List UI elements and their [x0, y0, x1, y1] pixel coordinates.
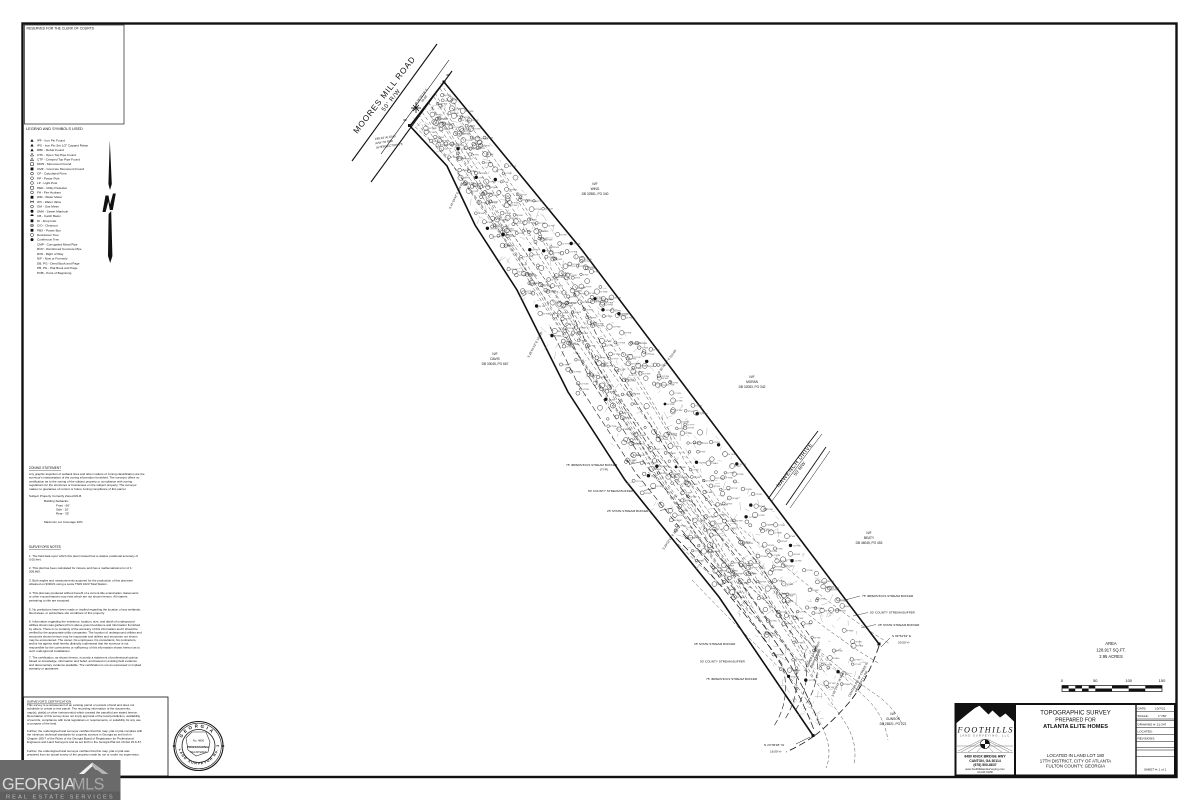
- svg-text:8"HW: 8"HW: [698, 560, 703, 562]
- svg-text:20"PINE: 20"PINE: [595, 325, 604, 327]
- svg-text:50: 50: [1093, 678, 1098, 683]
- svg-text:N/F: N/F: [890, 712, 895, 716]
- svg-text:12"PINE: 12"PINE: [600, 292, 609, 294]
- svg-text:16"PINE: 16"PINE: [715, 478, 724, 480]
- svg-text:8"PINE: 8"PINE: [559, 276, 566, 278]
- svg-text:8"HW: 8"HW: [594, 272, 599, 274]
- svg-text:30"HW: 30"HW: [589, 268, 596, 270]
- svg-text:8"PINE: 8"PINE: [606, 316, 613, 318]
- svg-text:12"HW: 12"HW: [468, 126, 475, 128]
- svg-text:8"PINE: 8"PINE: [541, 239, 548, 241]
- svg-text:24"HW: 24"HW: [654, 469, 661, 471]
- svg-text:6"HW: 6"HW: [482, 202, 487, 204]
- svg-text:CMP - Corrugated Metal Pipe: CMP - Corrugated Metal Pipe: [37, 242, 78, 246]
- svg-text:6"MAG: 6"MAG: [844, 683, 851, 686]
- svg-text:6"HW: 6"HW: [519, 233, 524, 235]
- svg-text:18"HW: 18"HW: [606, 345, 613, 347]
- svg-text:20"PINE: 20"PINE: [631, 363, 640, 365]
- svg-text:MORAN: MORAN: [746, 380, 759, 384]
- svg-text:CMF - Concrete Monument Found: CMF - Concrete Monument Found: [37, 167, 84, 171]
- svg-text:12"HW: 12"HW: [543, 313, 550, 315]
- svg-text:14"HW: 14"HW: [713, 551, 720, 553]
- svg-text:12"PINE: 12"PINE: [605, 305, 614, 307]
- svg-text:12"PINE: 12"PINE: [511, 218, 520, 220]
- svg-text:18"HW: 18"HW: [553, 247, 560, 249]
- svg-text:12"HW: 12"HW: [518, 272, 525, 274]
- svg-text:LOCATED IN LAND LOT 180: LOCATED IN LAND LOT 180: [1047, 753, 1105, 758]
- svg-text:6"MAG: 6"MAG: [711, 462, 718, 465]
- svg-text:8"HW: 8"HW: [787, 624, 792, 626]
- svg-text:10"GUM: 10"GUM: [462, 120, 470, 122]
- svg-text:208,660.: 208,660.: [29, 570, 41, 574]
- svg-text:16"PINE: 16"PINE: [796, 642, 805, 644]
- svg-text:36"HW: 36"HW: [565, 319, 572, 321]
- svg-text:18"HW: 18"HW: [714, 535, 721, 537]
- svg-text:8"PINE: 8"PINE: [558, 316, 565, 318]
- svg-text:30"HW: 30"HW: [555, 336, 562, 338]
- svg-text:14"HW: 14"HW: [814, 637, 821, 639]
- svg-text:18"HW: 18"HW: [458, 134, 465, 136]
- svg-text:6"MAG: 6"MAG: [566, 340, 573, 343]
- svg-text:20"HW: 20"HW: [566, 306, 573, 308]
- svg-text:16"HW: 16"HW: [648, 366, 655, 368]
- svg-text:SHEET #: 1 of 1: SHEET #: 1 of 1: [1144, 768, 1167, 772]
- svg-text:12"PINE: 12"PINE: [737, 597, 746, 599]
- svg-text:DB, PG - Deed Book and Page: DB, PG - Deed Book and Page: [37, 261, 80, 265]
- svg-text:Deciduous Tree: Deciduous Tree: [37, 233, 59, 237]
- svg-text:12"POP: 12"POP: [454, 144, 462, 146]
- svg-text:20"PINE: 20"PINE: [478, 173, 487, 175]
- svg-text:12"POP: 12"POP: [569, 303, 577, 305]
- svg-text:16"HW: 16"HW: [542, 231, 549, 233]
- svg-text:Coniferous Tree: Coniferous Tree: [37, 238, 59, 242]
- svg-text:36"HW: 36"HW: [615, 311, 622, 313]
- svg-text:75' IMPERVIOUS STREAM BUFFER: 75' IMPERVIOUS STREAM BUFFER: [706, 677, 758, 681]
- svg-text:R/W - Right of Way: R/W - Right of Way: [37, 252, 64, 256]
- svg-text:6"MAG: 6"MAG: [630, 459, 637, 462]
- svg-text:20"HW: 20"HW: [812, 590, 819, 592]
- svg-text:8"PINE: 8"PINE: [453, 99, 460, 101]
- svg-text:14"HW: 14"HW: [795, 561, 802, 563]
- svg-text:6"MAG: 6"MAG: [580, 339, 587, 342]
- svg-text:MLS: MLS: [72, 776, 105, 794]
- svg-text:14"HW: 14"HW: [768, 545, 775, 547]
- svg-text:8"HW: 8"HW: [683, 510, 688, 512]
- svg-text:10"HW: 10"HW: [438, 137, 445, 139]
- svg-text:12"PINE: 12"PINE: [473, 149, 482, 151]
- svg-text:18"HW: 18"HW: [474, 187, 481, 189]
- svg-text:10"HW: 10"HW: [606, 365, 613, 367]
- svg-text:12"HW: 12"HW: [702, 443, 709, 445]
- svg-text:20"HW: 20"HW: [485, 194, 492, 196]
- svg-text:12"POP: 12"POP: [613, 354, 621, 356]
- svg-text:REGISTERED: REGISTERED: [190, 751, 206, 754]
- svg-text:(TYP): (TYP): [600, 468, 608, 472]
- svg-text:20"HW: 20"HW: [534, 255, 541, 257]
- svg-text:12"PINE: 12"PINE: [569, 252, 578, 254]
- svg-text:16"HW: 16"HW: [566, 346, 573, 348]
- svg-text:10"GUM: 10"GUM: [693, 538, 701, 540]
- svg-text:17TH DISTRICT, CITY OF ATLANTA: 17TH DISTRICT, CITY OF ATLANTA: [1040, 758, 1112, 763]
- svg-text:12"HW: 12"HW: [778, 525, 785, 527]
- svg-text:10"GUM: 10"GUM: [580, 383, 588, 385]
- svg-text:WV - Water Valve: WV - Water Valve: [37, 200, 62, 204]
- svg-text:30"HW: 30"HW: [472, 154, 479, 156]
- svg-text:10"GUM: 10"GUM: [728, 454, 736, 456]
- svg-text:10"HW: 10"HW: [578, 360, 585, 362]
- svg-text:GM - Gas Meter: GM - Gas Meter: [37, 205, 59, 209]
- svg-text:16"HW: 16"HW: [751, 568, 758, 570]
- svg-text:8"HW: 8"HW: [493, 201, 498, 203]
- svg-text:12"POP: 12"POP: [444, 149, 452, 151]
- svg-text:12"PINE: 12"PINE: [462, 159, 471, 161]
- svg-text:8"HW: 8"HW: [579, 257, 584, 259]
- svg-text:36"HW: 36"HW: [670, 433, 677, 435]
- svg-text:MON - Monument Found: MON - Monument Found: [37, 162, 71, 166]
- svg-text:20"PINE: 20"PINE: [735, 574, 744, 576]
- svg-text:14"HW: 14"HW: [786, 601, 793, 603]
- svg-text:20"PINE: 20"PINE: [643, 374, 652, 376]
- svg-text:30"HW: 30"HW: [793, 545, 800, 547]
- svg-text:24"HW: 24"HW: [653, 349, 660, 351]
- svg-text:20"HW: 20"HW: [491, 228, 498, 230]
- svg-text:36"HW: 36"HW: [786, 584, 793, 586]
- svg-text:Building Setbacks:: Building Setbacks:: [44, 499, 69, 503]
- svg-text:25' STATE STREAM BUFFER: 25' STATE STREAM BUFFER: [878, 623, 920, 627]
- svg-text:DAVIS: DAVIS: [490, 357, 499, 361]
- svg-text:8"HW: 8"HW: [569, 335, 574, 337]
- svg-text:8"PINE: 8"PINE: [707, 551, 714, 553]
- svg-text:14"HW: 14"HW: [726, 504, 733, 506]
- svg-text:N/F: N/F: [592, 182, 597, 186]
- svg-text:14"HW: 14"HW: [735, 592, 742, 594]
- svg-text:20"HW: 20"HW: [760, 556, 767, 558]
- svg-text:12"POP: 12"POP: [727, 565, 735, 567]
- svg-text:36"HW: 36"HW: [797, 618, 804, 620]
- svg-text:LOCATED:: LOCATED:: [1138, 730, 1153, 734]
- svg-text:CP - Calculated Point: CP - Calculated Point: [37, 172, 67, 176]
- svg-text:16"PINE: 16"PINE: [681, 422, 690, 424]
- svg-text:N/F: N/F: [492, 352, 497, 356]
- svg-text:20"PINE: 20"PINE: [594, 297, 603, 299]
- svg-text:30"HW: 30"HW: [531, 283, 538, 285]
- svg-text:75' IMPERVIOUS STREAM BUFFER: 75' IMPERVIOUS STREAM BUFFER: [566, 463, 618, 467]
- svg-text:14"HW: 14"HW: [692, 470, 699, 472]
- svg-text:18"HW: 18"HW: [623, 412, 630, 414]
- svg-text:12"HW: 12"HW: [688, 411, 695, 413]
- svg-text:30"HW: 30"HW: [491, 187, 498, 189]
- svg-text:SURVEYORS NOTES: SURVEYORS NOTES: [29, 545, 61, 549]
- svg-text:16"PINE: 16"PINE: [656, 486, 665, 488]
- svg-text:DB 32581, PG 340: DB 32581, PG 340: [582, 192, 609, 196]
- svg-text:20"PINE: 20"PINE: [718, 571, 727, 573]
- svg-text:24"HW: 24"HW: [468, 183, 475, 185]
- svg-text:PROFESSIONAL: PROFESSIONAL: [187, 745, 210, 749]
- svg-text:16"PINE: 16"PINE: [776, 654, 785, 656]
- svg-text:36"HW: 36"HW: [770, 635, 777, 637]
- svg-text:PB, PG - Plat Book and Page: PB, PG - Plat Book and Page: [37, 266, 78, 270]
- svg-text:12"HW: 12"HW: [630, 358, 637, 360]
- svg-text:12"HW: 12"HW: [674, 393, 681, 395]
- svg-text:8"PINE: 8"PINE: [593, 301, 600, 303]
- svg-text:8"HW: 8"HW: [571, 343, 576, 345]
- svg-text:8"PINE: 8"PINE: [489, 182, 496, 184]
- svg-text:30"HW: 30"HW: [539, 306, 546, 308]
- svg-text:6"HW: 6"HW: [575, 278, 580, 280]
- svg-text:N 23°38'48" W: N 23°38'48" W: [764, 743, 784, 747]
- svg-text:12"HW: 12"HW: [591, 375, 598, 377]
- svg-text:prepared from an actual survey: prepared from an actual survey of the pr…: [27, 753, 140, 757]
- svg-text:16"HW: 16"HW: [781, 541, 788, 543]
- svg-text:14"HW: 14"HW: [519, 221, 526, 223]
- svg-text:8"PINE: 8"PINE: [847, 630, 854, 632]
- svg-text:20"PINE: 20"PINE: [510, 205, 519, 207]
- svg-text:16"PINE: 16"PINE: [573, 372, 582, 374]
- svg-text:No. 4800: No. 4800: [193, 739, 205, 743]
- svg-text:6"HW: 6"HW: [487, 222, 492, 224]
- svg-text:30"HW: 30"HW: [855, 642, 862, 644]
- svg-text:6"MAG: 6"MAG: [508, 245, 515, 248]
- svg-text:DB 32083, PG 342: DB 32083, PG 342: [739, 385, 766, 389]
- svg-text:12"HW: 12"HW: [715, 567, 722, 569]
- svg-text:16"PINE: 16"PINE: [632, 394, 641, 396]
- svg-text:RCP - Reinforced Concrete Pipe: RCP - Reinforced Concrete Pipe: [37, 247, 82, 251]
- svg-text:8"PINE: 8"PINE: [771, 589, 778, 591]
- svg-text:150: 150: [1159, 678, 1166, 683]
- svg-text:10"GUM: 10"GUM: [674, 520, 682, 522]
- svg-text:DB 33045, PG 667: DB 33045, PG 667: [482, 362, 509, 366]
- svg-text:18"HW: 18"HW: [516, 215, 523, 217]
- svg-text:36"HW: 36"HW: [560, 234, 567, 236]
- svg-text:12"POP: 12"POP: [562, 244, 570, 246]
- svg-text:DATE:: DATE:: [1138, 707, 1147, 711]
- svg-text:75' IMPERVIOUS STREAM BUFFER: 75' IMPERVIOUS STREAM BUFFER: [862, 594, 914, 598]
- svg-text:FH - Fire Hydrant: FH - Fire Hydrant: [37, 191, 61, 195]
- svg-text:16"HW: 16"HW: [444, 95, 451, 97]
- svg-text:20"PINE: 20"PINE: [466, 111, 475, 113]
- svg-text:16"HW: 16"HW: [474, 129, 481, 131]
- svg-text:LAND SURVEYING, LLC: LAND SURVEYING, LLC: [960, 734, 1010, 738]
- svg-text:Rear - 35': Rear - 35': [56, 512, 70, 516]
- svg-text:128,917 SQ.FT.: 128,917 SQ.FT.: [1096, 648, 1125, 653]
- svg-text:12"HW: 12"HW: [660, 436, 667, 438]
- svg-text:16"HW: 16"HW: [625, 418, 632, 420]
- svg-text:12"PINE: 12"PINE: [709, 517, 718, 519]
- svg-text:DB 46045, PG 453: DB 46045, PG 453: [856, 541, 883, 545]
- svg-text:6"HW: 6"HW: [679, 428, 684, 430]
- svg-text:12"PINE: 12"PINE: [667, 385, 676, 387]
- svg-text:6"HW: 6"HW: [845, 606, 850, 608]
- svg-text:10"GUM: 10"GUM: [791, 676, 799, 678]
- svg-text:8"PINE: 8"PINE: [625, 333, 632, 335]
- svg-text:10"HW: 10"HW: [455, 108, 462, 110]
- svg-text:20"PINE: 20"PINE: [600, 377, 609, 379]
- svg-text:14"HW: 14"HW: [429, 132, 436, 134]
- svg-text:10"GUM: 10"GUM: [429, 128, 437, 130]
- svg-text:10"GUM: 10"GUM: [639, 343, 647, 345]
- svg-text:12"HW: 12"HW: [562, 312, 569, 314]
- svg-text:20"HW: 20"HW: [626, 355, 633, 357]
- svg-text:24"HW: 24"HW: [463, 117, 470, 119]
- svg-text:20"PINE: 20"PINE: [694, 551, 703, 553]
- svg-text:10"HW: 10"HW: [690, 496, 697, 498]
- svg-text:24"HW: 24"HW: [767, 525, 774, 527]
- svg-text:8"PINE: 8"PINE: [574, 244, 581, 246]
- svg-text:14"HW: 14"HW: [606, 310, 613, 312]
- svg-text:12"PINE: 12"PINE: [786, 560, 795, 562]
- svg-text:IPS - Iron Pin Set 1/2" Capped: IPS - Iron Pin Set 1/2" Capped Rebar: [37, 143, 88, 147]
- svg-text:12"PINE: 12"PINE: [678, 467, 687, 469]
- svg-text:12"POP: 12"POP: [584, 261, 592, 263]
- svg-text:6"HW: 6"HW: [634, 404, 639, 406]
- svg-text:12"POP: 12"POP: [687, 424, 695, 426]
- svg-text:6"MAG: 6"MAG: [777, 580, 784, 583]
- svg-text:12"PINE: 12"PINE: [795, 660, 804, 662]
- svg-text:8"PINE: 8"PINE: [836, 651, 843, 653]
- svg-text:S 39°52'49" E: S 39°52'49" E: [892, 634, 911, 638]
- svg-text:GUNSON: GUNSON: [886, 717, 901, 721]
- svg-text:6"HW: 6"HW: [790, 536, 795, 538]
- svg-text:12"POP: 12"POP: [731, 488, 739, 490]
- svg-text:30"HW: 30"HW: [605, 341, 612, 343]
- svg-text:6"HW: 6"HW: [590, 345, 595, 347]
- svg-text:36"HW: 36"HW: [660, 473, 667, 475]
- svg-text:LEGEND AND SYMBOLS USED: LEGEND AND SYMBOLS USED: [26, 126, 83, 131]
- svg-text:6"MAG: 6"MAG: [526, 292, 533, 295]
- svg-text:ATLANTA ELITE HOMES: ATLANTA ELITE HOMES: [1043, 724, 1108, 730]
- svg-text:6"MAG: 6"MAG: [707, 491, 714, 494]
- svg-text:20"PINE: 20"PINE: [809, 680, 818, 682]
- svg-text:6"MAG: 6"MAG: [525, 230, 532, 233]
- svg-text:30"HW: 30"HW: [558, 331, 565, 333]
- svg-text:12"HW: 12"HW: [544, 285, 551, 287]
- svg-text:8"PINE: 8"PINE: [464, 131, 471, 133]
- svg-text:16"HW: 16"HW: [732, 498, 739, 500]
- svg-text:6"HW: 6"HW: [777, 549, 782, 551]
- svg-text:10/7/21: 10/7/21: [1155, 707, 1166, 711]
- svg-text:SMH - Sewer Manhole: SMH - Sewer Manhole: [37, 209, 68, 213]
- svg-text:30"HW: 30"HW: [699, 462, 706, 464]
- svg-text:WING: WING: [591, 187, 600, 191]
- svg-text:24"HW: 24"HW: [671, 382, 678, 384]
- svg-text:24"HW: 24"HW: [685, 433, 692, 435]
- svg-text:16"HW: 16"HW: [622, 429, 629, 431]
- svg-text:10"HW: 10"HW: [677, 515, 684, 517]
- svg-text:20"PINE: 20"PINE: [509, 189, 518, 191]
- svg-text:16"HW: 16"HW: [806, 570, 813, 572]
- svg-text:DB 26521, PG 221: DB 26521, PG 221: [880, 722, 907, 726]
- svg-text:10"GUM: 10"GUM: [772, 555, 780, 557]
- svg-text:10"GUM: 10"GUM: [775, 570, 783, 572]
- svg-text:RESERVED FOR THE CLERK OF COUR: RESERVED FOR THE CLERK OF COURTS: [27, 27, 95, 31]
- svg-text:18"HW: 18"HW: [680, 477, 687, 479]
- svg-text:14"HW: 14"HW: [570, 275, 577, 277]
- svg-text:6"HW: 6"HW: [503, 182, 508, 184]
- svg-text:8"PINE: 8"PINE: [567, 328, 574, 330]
- svg-text:10"GUM: 10"GUM: [792, 670, 800, 672]
- svg-text:such underground installations: such underground installations.: [29, 649, 71, 653]
- svg-text:20"PINE: 20"PINE: [667, 404, 676, 406]
- svg-text:14"HW: 14"HW: [694, 477, 701, 479]
- svg-text:8"PINE: 8"PINE: [535, 209, 542, 211]
- svg-text:16.00'+/-: 16.00'+/-: [770, 750, 782, 754]
- svg-text:LP - Light Post: LP - Light Post: [37, 181, 57, 185]
- svg-text:12"PINE: 12"PINE: [553, 253, 562, 255]
- svg-text:30"HW: 30"HW: [644, 463, 651, 465]
- svg-text:6"MAG: 6"MAG: [817, 607, 824, 610]
- svg-text:12"PINE: 12"PINE: [605, 303, 614, 305]
- svg-text:8"PINE: 8"PINE: [563, 365, 570, 367]
- svg-text:20"HW: 20"HW: [736, 521, 743, 523]
- svg-text:12"HW: 12"HW: [661, 439, 668, 441]
- svg-text:16"HW: 16"HW: [651, 476, 658, 478]
- svg-text:6"HW: 6"HW: [819, 599, 824, 601]
- svg-text:16"PINE: 16"PINE: [627, 442, 636, 444]
- svg-text:BEATY: BEATY: [864, 536, 875, 540]
- svg-text:20"HW: 20"HW: [789, 594, 796, 596]
- svg-text:WM - Water Meter: WM - Water Meter: [37, 195, 62, 199]
- svg-text:CB - Catch Basin: CB - Catch Basin: [37, 214, 61, 218]
- svg-text:8"HW: 8"HW: [583, 274, 588, 276]
- svg-text:6"HW: 6"HW: [479, 177, 484, 179]
- svg-text:25' STATE STREAM BUFFER: 25' STATE STREAM BUFFER: [607, 509, 649, 513]
- svg-text:18"HW: 18"HW: [662, 378, 669, 380]
- svg-text:REAL ESTATE SERVICES: REAL ESTATE SERVICES: [6, 794, 115, 800]
- svg-text:12"HW: 12"HW: [713, 486, 720, 488]
- svg-text:14"HW: 14"HW: [619, 369, 626, 371]
- svg-text:1. The field data upon which t: 1. The field data upon which this plat i…: [29, 554, 138, 558]
- svg-text:30"HW: 30"HW: [745, 489, 752, 491]
- svg-text:12"POP: 12"POP: [451, 113, 459, 115]
- svg-text:30"HW: 30"HW: [734, 562, 741, 564]
- svg-text:24"HW: 24"HW: [570, 297, 577, 299]
- svg-text:10"GUM: 10"GUM: [840, 600, 848, 602]
- svg-text:24"HW: 24"HW: [609, 399, 616, 401]
- svg-text:16"HW: 16"HW: [548, 225, 555, 227]
- svg-text:12"POP: 12"POP: [584, 286, 592, 288]
- svg-text:Maximum Lot Coverage 40%: Maximum Lot Coverage 40%: [44, 520, 83, 524]
- svg-text:18"HW: 18"HW: [483, 145, 490, 147]
- svg-text:8"HW: 8"HW: [789, 616, 794, 618]
- svg-text:20"PINE: 20"PINE: [578, 328, 587, 330]
- svg-text:10"GUM: 10"GUM: [786, 566, 794, 568]
- svg-text:20"HW: 20"HW: [586, 309, 593, 311]
- svg-text:14"HW: 14"HW: [626, 318, 633, 320]
- svg-text:36"HW: 36"HW: [580, 294, 587, 296]
- svg-text:6"HW: 6"HW: [815, 613, 820, 615]
- svg-text:12"HW: 12"HW: [642, 348, 649, 350]
- svg-text:20.50'+/-: 20.50'+/-: [898, 641, 910, 645]
- svg-text:20"HW: 20"HW: [609, 391, 616, 393]
- svg-text:N/F: N/F: [749, 375, 754, 379]
- svg-text:12"PINE: 12"PINE: [725, 478, 734, 480]
- svg-text:12"POP: 12"POP: [523, 257, 531, 259]
- svg-text:20"PINE: 20"PINE: [743, 565, 752, 567]
- svg-text:8"PINE: 8"PINE: [494, 236, 501, 238]
- svg-text:12"PINE: 12"PINE: [719, 515, 728, 517]
- svg-text:IPF: IPF: [403, 118, 407, 122]
- svg-text:16"PINE: 16"PINE: [749, 517, 758, 519]
- svg-text:8"PINE: 8"PINE: [462, 170, 469, 172]
- svg-text:16"PINE: 16"PINE: [536, 201, 545, 203]
- svg-text:8"HW: 8"HW: [751, 574, 756, 576]
- svg-text:10"GUM: 10"GUM: [637, 455, 645, 457]
- svg-text:12"POP: 12"POP: [611, 358, 619, 360]
- svg-text:12"PINE: 12"PINE: [444, 125, 453, 127]
- svg-text:12"PINE: 12"PINE: [774, 532, 783, 534]
- svg-text:24"HW: 24"HW: [645, 493, 652, 495]
- svg-text:16"HW: 16"HW: [615, 298, 622, 300]
